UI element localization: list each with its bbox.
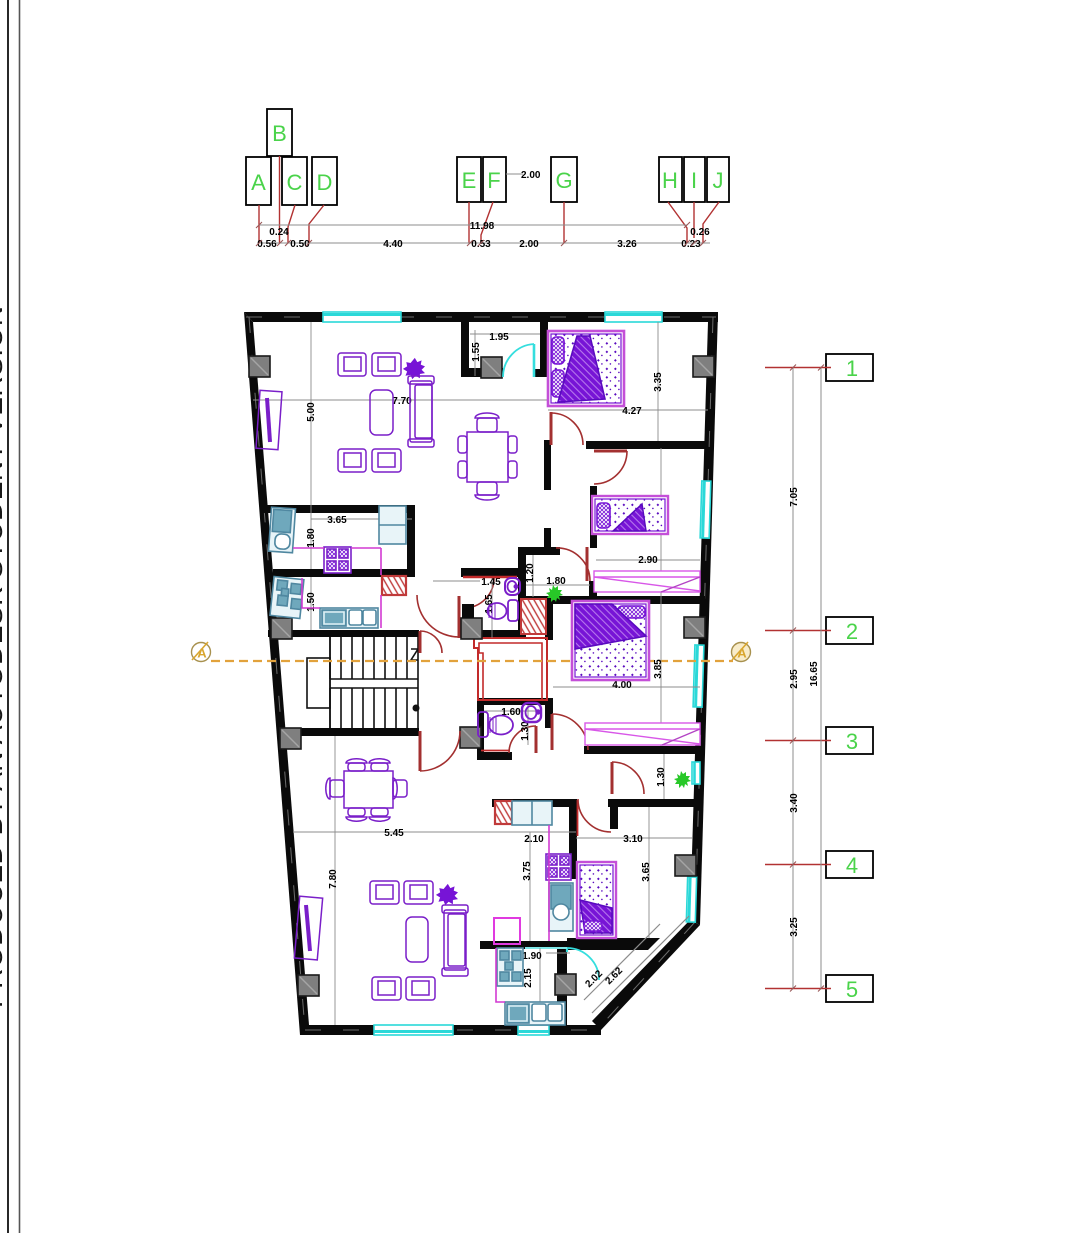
svg-text:4.40: 4.40 xyxy=(383,239,403,250)
svg-text:D: D xyxy=(317,170,333,195)
svg-text:4: 4 xyxy=(846,853,858,878)
svg-text:5: 5 xyxy=(846,977,858,1002)
svg-text:0.24: 0.24 xyxy=(269,227,289,238)
svg-text:2.15: 2.15 xyxy=(523,968,534,988)
svg-text:PRODUCED BY AN AUTODESK STUDEN: PRODUCED BY AN AUTODESK STUDENT VERSION xyxy=(0,305,8,1008)
svg-text:3.26: 3.26 xyxy=(617,239,637,250)
svg-text:1.95: 1.95 xyxy=(489,332,509,343)
svg-text:4.27: 4.27 xyxy=(622,406,642,417)
svg-text:3.65: 3.65 xyxy=(327,515,347,526)
svg-text:A: A xyxy=(737,646,747,661)
svg-text:1.55: 1.55 xyxy=(471,342,482,362)
svg-text:7.05: 7.05 xyxy=(789,487,800,507)
svg-text:2.00: 2.00 xyxy=(521,170,541,181)
svg-text:3.35: 3.35 xyxy=(653,372,664,392)
svg-text:2.00: 2.00 xyxy=(519,239,539,250)
svg-text:3.65: 3.65 xyxy=(641,862,652,882)
svg-text:3.85: 3.85 xyxy=(653,659,664,679)
svg-text:F: F xyxy=(487,168,500,193)
svg-text:2: 2 xyxy=(846,619,858,644)
svg-text:11.98: 11.98 xyxy=(470,221,495,232)
svg-text:4.00: 4.00 xyxy=(612,680,632,691)
svg-text:2.10: 2.10 xyxy=(524,834,544,845)
svg-text:G: G xyxy=(555,168,572,193)
svg-text:0.23: 0.23 xyxy=(681,239,701,250)
svg-text:1.80: 1.80 xyxy=(306,528,317,548)
svg-text:7.70: 7.70 xyxy=(392,396,412,407)
svg-text:1.45: 1.45 xyxy=(481,577,501,588)
svg-text:5.45: 5.45 xyxy=(384,828,404,839)
svg-text:J: J xyxy=(713,168,724,193)
svg-text:0.56: 0.56 xyxy=(257,239,277,250)
svg-text:1: 1 xyxy=(846,356,858,381)
svg-text:16.65: 16.65 xyxy=(809,661,820,686)
svg-text:3: 3 xyxy=(846,729,858,754)
svg-text:1.90: 1.90 xyxy=(522,951,542,962)
svg-text:2.90: 2.90 xyxy=(638,555,658,566)
svg-text:3.40: 3.40 xyxy=(789,793,800,813)
svg-text:5.00: 5.00 xyxy=(306,402,317,422)
svg-text:B: B xyxy=(272,121,287,146)
svg-text:1.30: 1.30 xyxy=(520,721,531,741)
svg-text:A: A xyxy=(197,646,207,661)
svg-text:C: C xyxy=(287,170,303,195)
svg-text:2.95: 2.95 xyxy=(789,669,800,689)
svg-text:E: E xyxy=(462,168,477,193)
svg-text:0.53: 0.53 xyxy=(471,239,491,250)
svg-text:I: I xyxy=(691,168,697,193)
svg-text:3.75: 3.75 xyxy=(522,861,533,881)
svg-text:A: A xyxy=(251,170,266,195)
svg-text:0.26: 0.26 xyxy=(690,227,710,238)
svg-text:3.10: 3.10 xyxy=(623,834,643,845)
svg-text:1.30: 1.30 xyxy=(656,767,667,787)
svg-text:3.25: 3.25 xyxy=(789,917,800,937)
svg-text:1.80: 1.80 xyxy=(546,576,566,587)
svg-text:H: H xyxy=(662,168,678,193)
svg-text:7.80: 7.80 xyxy=(328,869,339,889)
svg-text:1.20: 1.20 xyxy=(525,563,536,583)
